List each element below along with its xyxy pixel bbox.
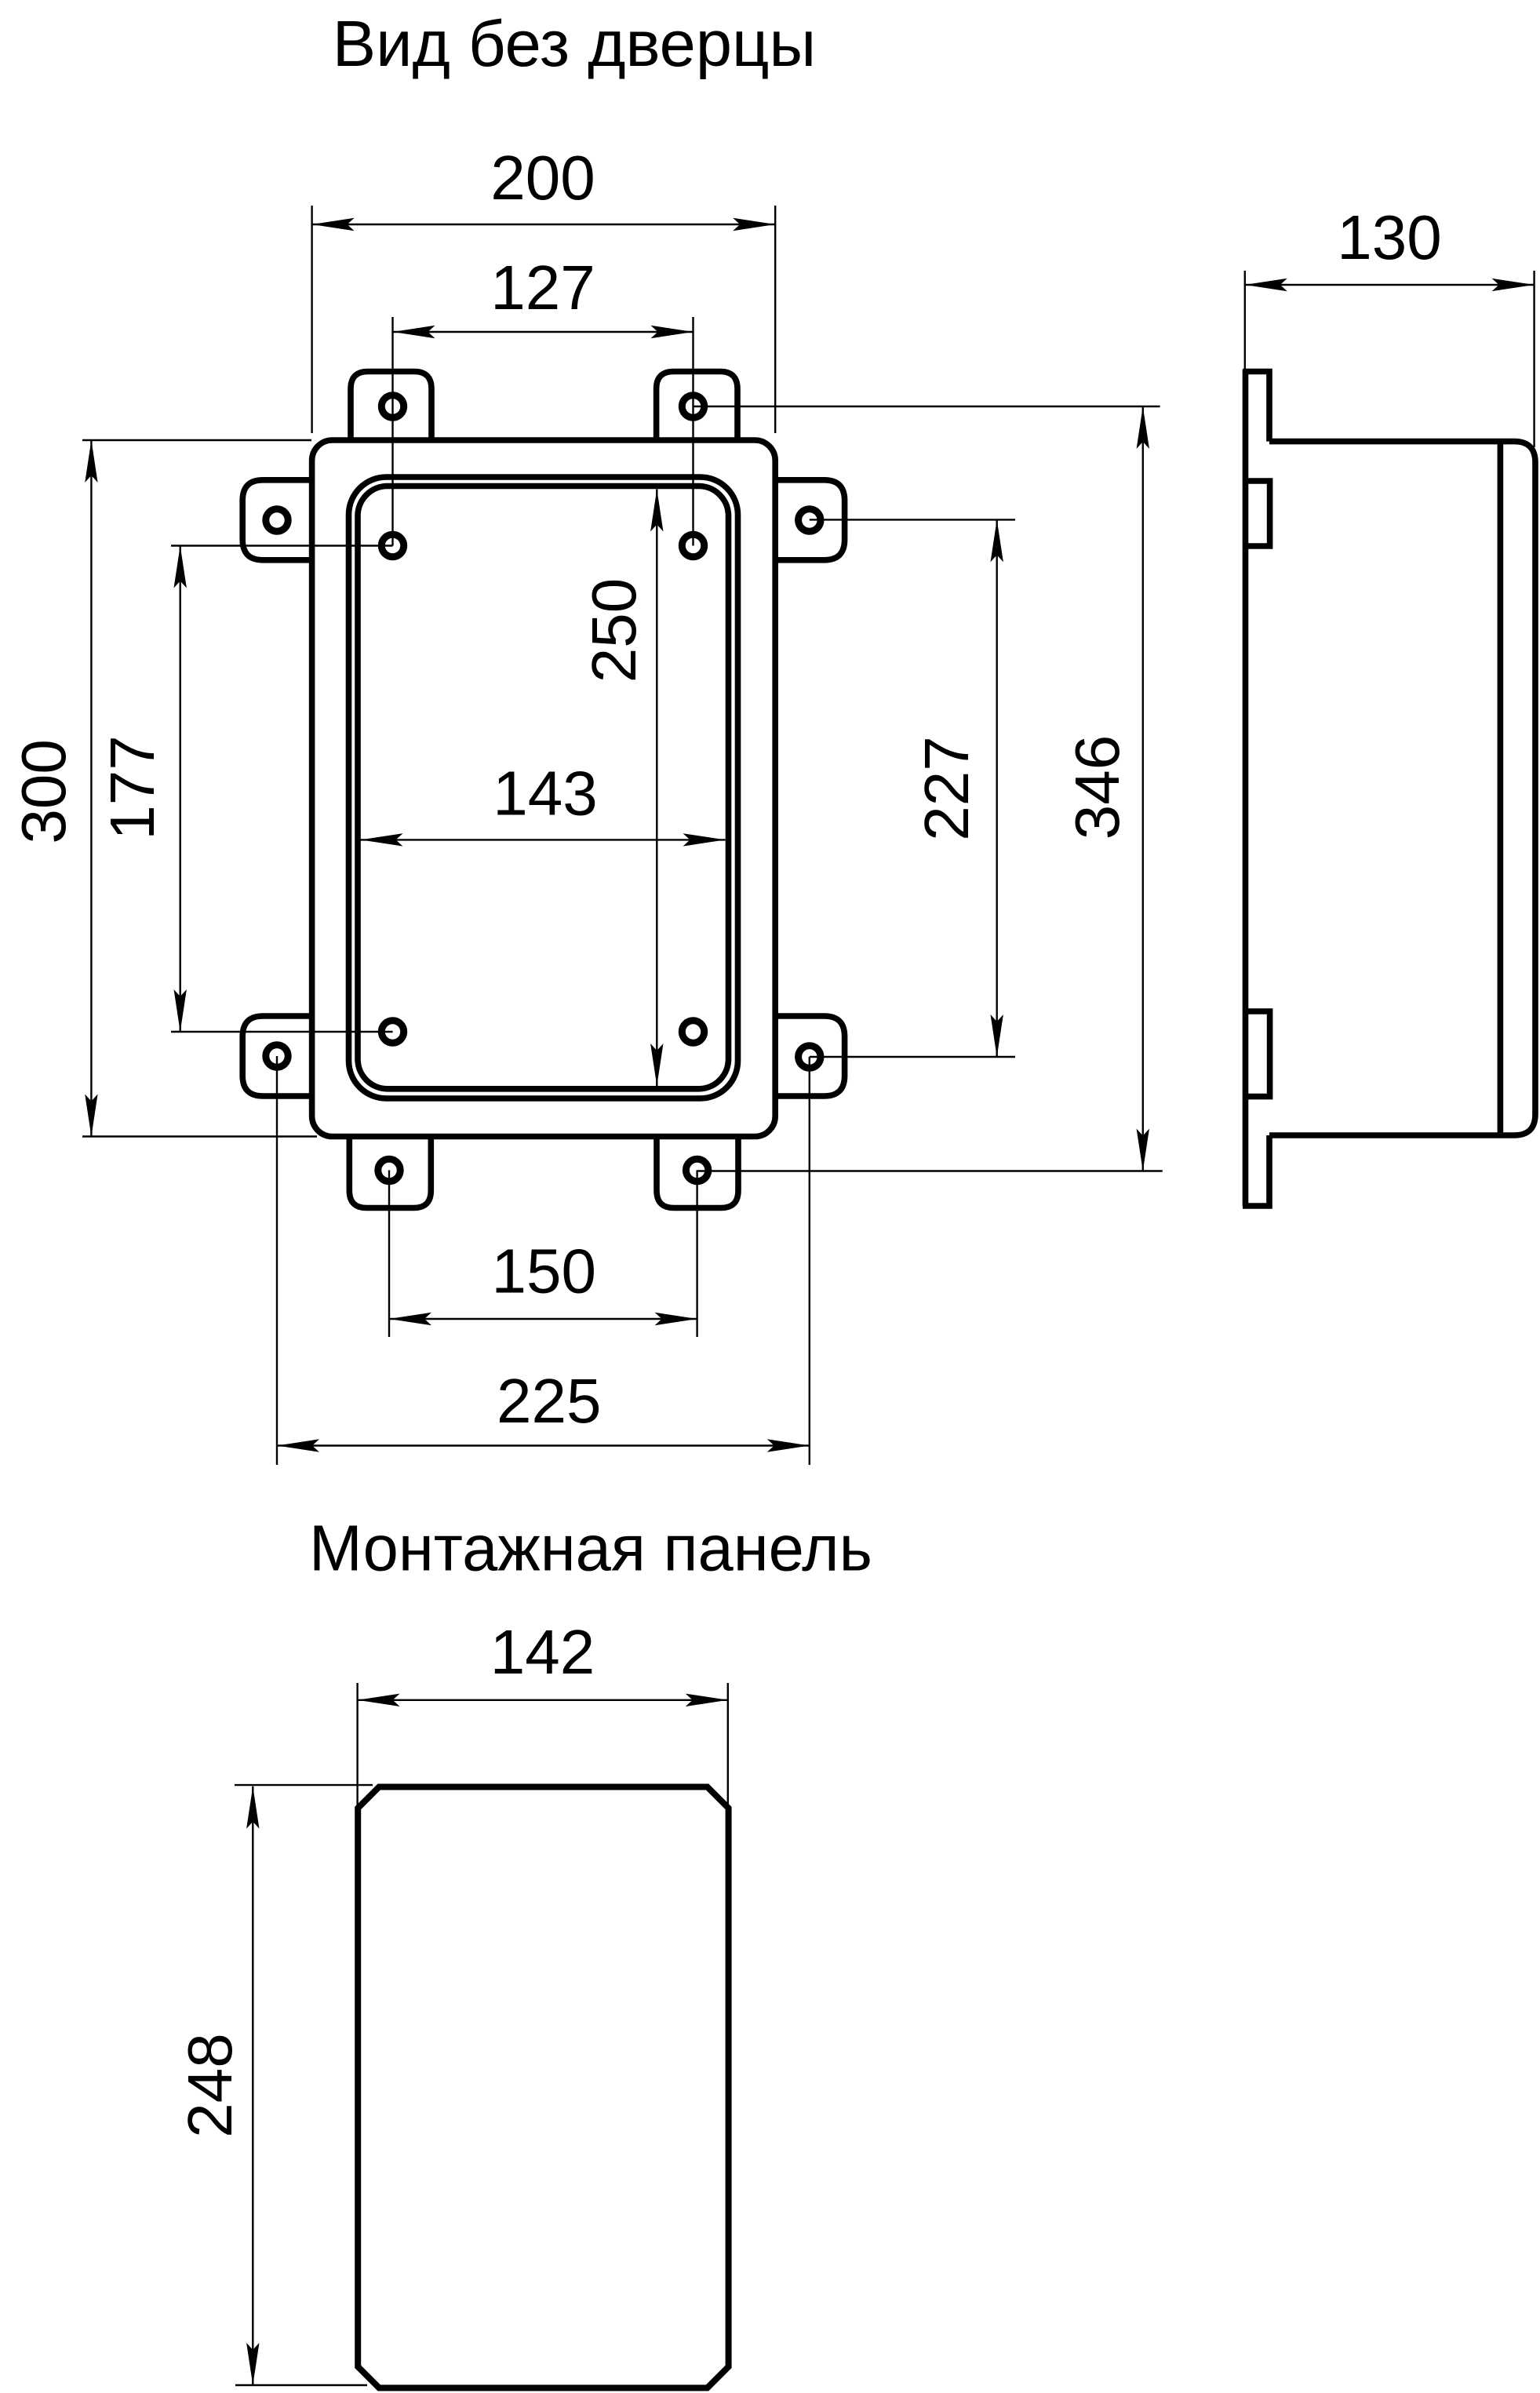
svg-text:177: 177: [97, 735, 167, 840]
svg-text:225: 225: [497, 1366, 601, 1436]
svg-text:300: 300: [9, 739, 78, 843]
svg-text:248: 248: [175, 2033, 245, 2137]
svg-text:142: 142: [490, 1617, 595, 1687]
svg-text:227: 227: [912, 736, 981, 840]
svg-text:200: 200: [490, 143, 595, 213]
svg-text:130: 130: [1337, 202, 1441, 272]
svg-text:Вид без дверцы: Вид без дверцы: [333, 7, 816, 80]
svg-text:Монтажная панель: Монтажная панель: [309, 1512, 872, 1585]
svg-text:250: 250: [579, 578, 649, 683]
svg-text:346: 346: [1062, 735, 1132, 840]
svg-text:127: 127: [490, 253, 595, 322]
svg-text:150: 150: [492, 1236, 596, 1306]
svg-text:143: 143: [493, 759, 597, 829]
